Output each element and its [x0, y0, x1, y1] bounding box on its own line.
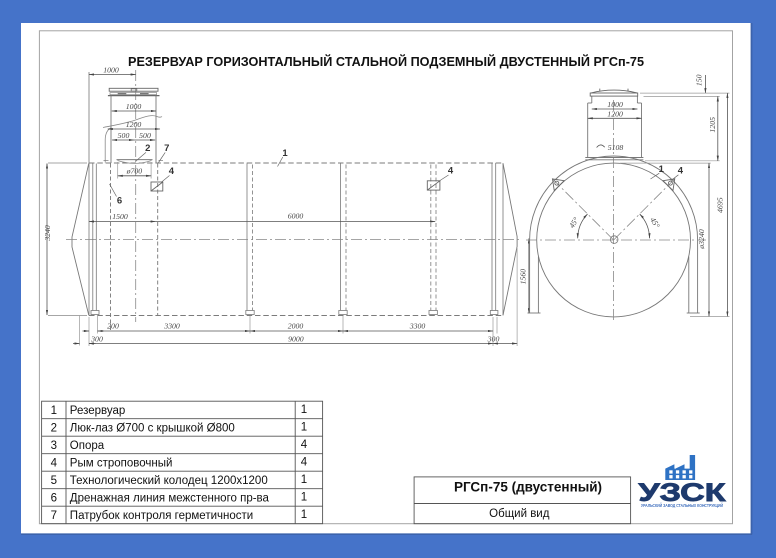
svg-text:4: 4: [301, 439, 308, 451]
svg-text:1205: 1205: [708, 117, 717, 133]
svg-text:200: 200: [107, 322, 119, 331]
svg-text:1: 1: [301, 474, 307, 486]
svg-text:4695: 4695: [715, 197, 724, 213]
svg-text:РЕЗЕРВУАР ГОРИЗОНТАЛЬНЫЙ СТАЛЬ: РЕЗЕРВУАР ГОРИЗОНТАЛЬНЫЙ СТАЛЬНОЙ ПОДЗЕМ…: [128, 54, 644, 69]
svg-text:Рым строповочный: Рым строповочный: [70, 458, 173, 470]
svg-text:1500: 1500: [112, 212, 128, 221]
svg-text:Технологический колодец 1200х1: Технологический колодец 1200х1200: [70, 475, 268, 487]
svg-text:ø700: ø700: [126, 167, 143, 176]
svg-text:4: 4: [678, 165, 684, 176]
svg-text:Общий вид: Общий вид: [489, 508, 550, 520]
svg-text:1: 1: [301, 509, 307, 521]
svg-text:1000: 1000: [126, 102, 142, 111]
svg-text:9000: 9000: [288, 335, 304, 344]
svg-text:РГСп-75 (двустенный): РГСп-75 (двустенный): [454, 480, 602, 495]
svg-text:5: 5: [51, 475, 57, 487]
svg-text:1: 1: [301, 422, 307, 434]
svg-text:6: 6: [51, 493, 57, 505]
svg-text:500: 500: [118, 131, 130, 140]
svg-text:500: 500: [139, 131, 151, 140]
svg-text:300: 300: [90, 335, 103, 344]
svg-text:УРАЛЬСКИЙ ЗАВОД СТАЛЬНЫХ КОНСТ: УРАЛЬСКИЙ ЗАВОД СТАЛЬНЫХ КОНСТРУКЦИЙ: [641, 503, 723, 508]
svg-text:1: 1: [301, 404, 307, 416]
svg-text:1200: 1200: [607, 109, 623, 118]
svg-text:1000: 1000: [607, 100, 623, 109]
svg-text:1200: 1200: [126, 120, 142, 129]
svg-text:Дренажная линия межстенного пр: Дренажная линия межстенного пр-ва: [70, 493, 270, 505]
svg-text:4: 4: [169, 166, 175, 177]
svg-text:300: 300: [487, 335, 500, 344]
svg-text:4: 4: [51, 458, 58, 470]
svg-text:4: 4: [448, 166, 454, 177]
svg-text:1: 1: [51, 405, 57, 417]
svg-text:7: 7: [51, 510, 57, 522]
svg-text:1560: 1560: [519, 269, 528, 285]
svg-text:3240: 3240: [43, 225, 52, 242]
svg-text:6000: 6000: [288, 212, 304, 221]
svg-text:1000: 1000: [103, 66, 119, 75]
svg-text:1: 1: [282, 148, 288, 159]
svg-text:3300: 3300: [163, 322, 180, 331]
svg-text:1: 1: [301, 492, 307, 504]
svg-text:2: 2: [51, 423, 57, 435]
svg-text:6: 6: [117, 196, 122, 207]
svg-text:3300: 3300: [409, 322, 426, 331]
svg-text:4: 4: [301, 457, 308, 469]
svg-text:ø3240: ø3240: [697, 229, 706, 250]
svg-text:Опора: Опора: [70, 440, 105, 452]
svg-text:1: 1: [659, 164, 665, 175]
svg-text:150: 150: [695, 74, 704, 86]
svg-text:Люк-лаз Ø700 с крышкой Ø800: Люк-лаз Ø700 с крышкой Ø800: [70, 423, 235, 435]
svg-text:Патрубок контроля герметичност: Патрубок контроля герметичности: [70, 510, 253, 522]
svg-text:Резервуар: Резервуар: [70, 405, 126, 417]
svg-text:5108: 5108: [608, 143, 624, 152]
svg-text:2000: 2000: [288, 322, 304, 331]
svg-text:3: 3: [51, 440, 57, 452]
